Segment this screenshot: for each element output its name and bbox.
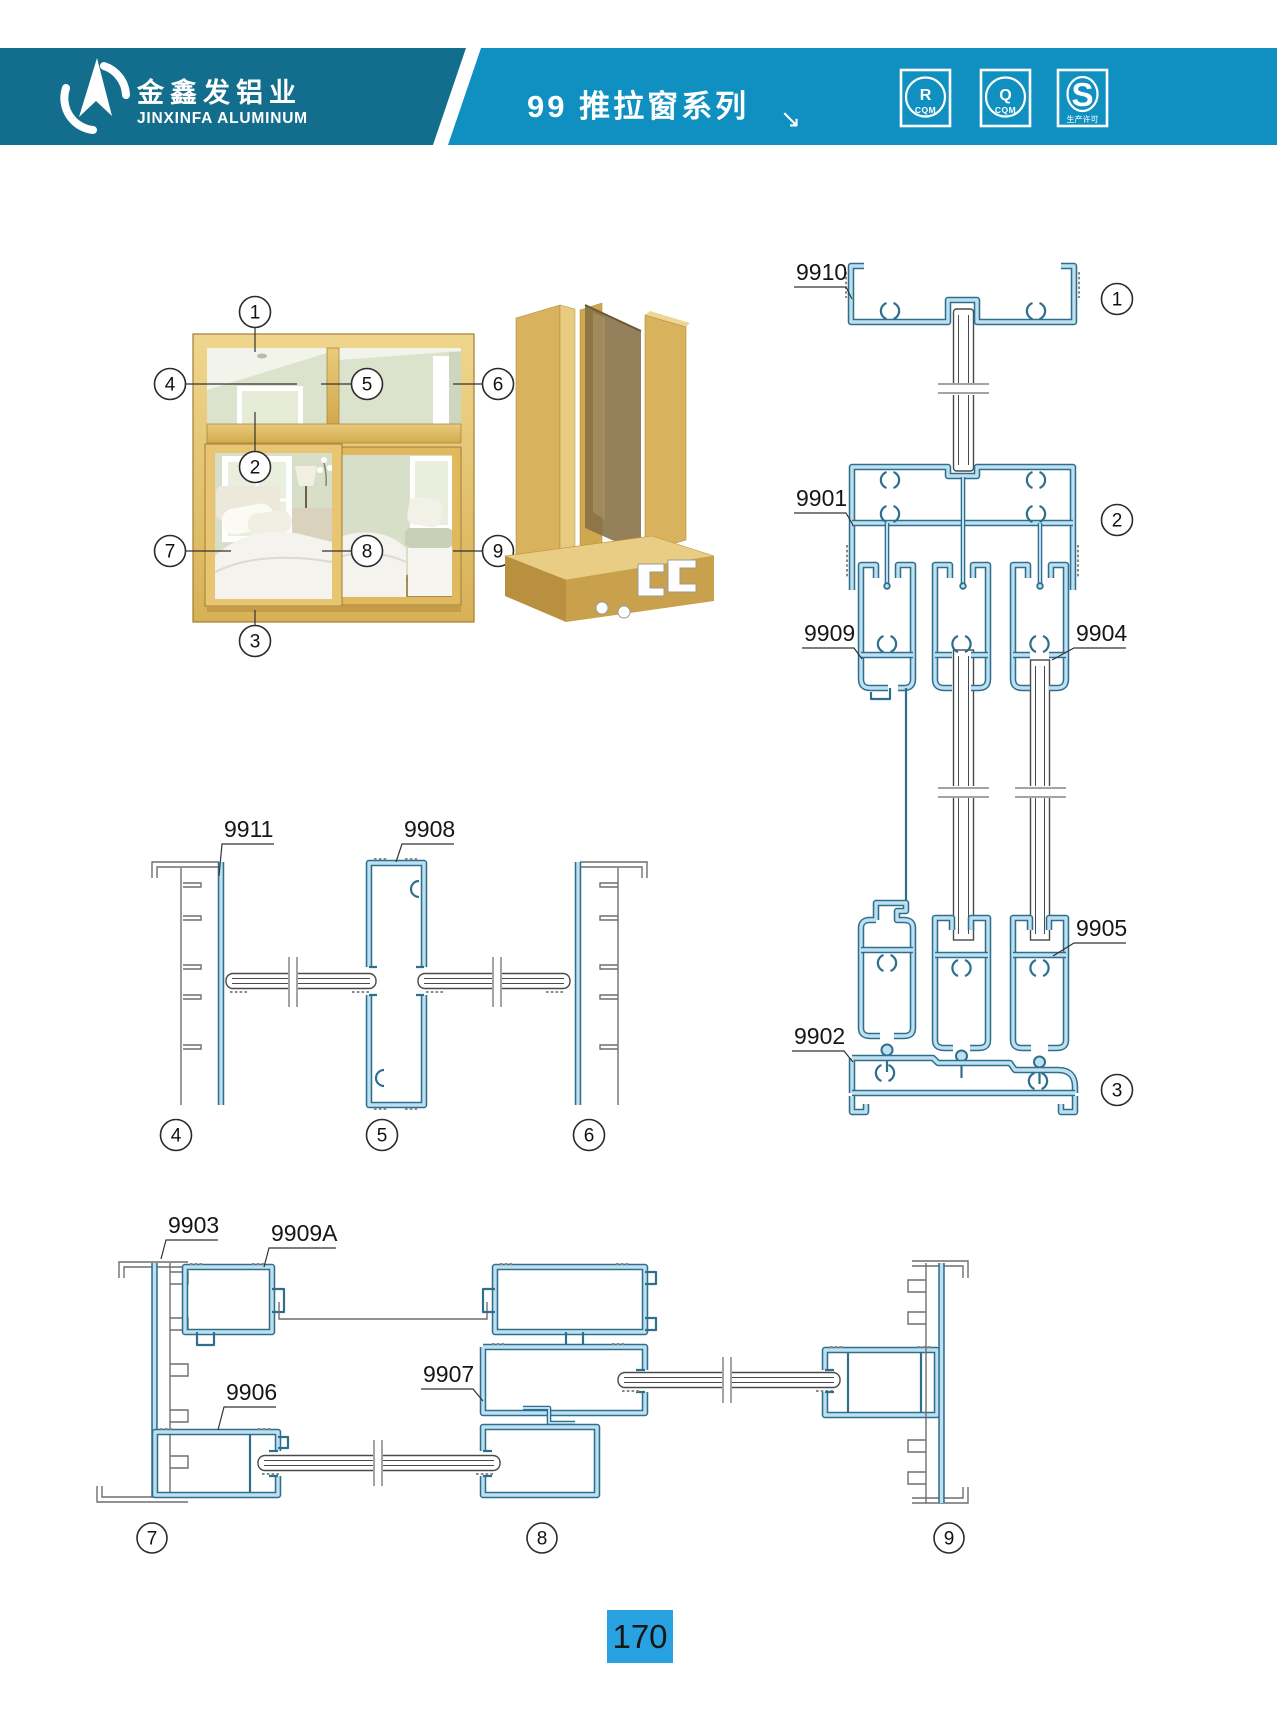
part-number: 9905 (1076, 915, 1127, 941)
callout-number: 2 (1112, 511, 1123, 532)
part-label-9903: 9903 (161, 1212, 219, 1259)
part-label-9908: 9908 (396, 816, 455, 862)
part-number: 9903 (168, 1212, 219, 1238)
sash-box-top-right (483, 1264, 656, 1346)
callout-4: 4 (155, 369, 186, 400)
part-number: 9902 (794, 1023, 845, 1049)
part-number: 9910 (796, 259, 847, 285)
badge-label: CQM (915, 105, 936, 115)
callout-5: 5 (352, 369, 383, 400)
callout-number: 3 (1112, 1081, 1123, 1102)
bottom-track (207, 606, 461, 612)
section-circle-7: 7 (137, 1523, 167, 1553)
section-circle-3: 3 (1102, 1075, 1133, 1106)
profile-9909-connector-line (871, 688, 906, 903)
callout-number: 1 (1112, 290, 1123, 311)
callout-number: 8 (537, 1529, 548, 1550)
badge-symbol: Q (999, 87, 1011, 104)
sash-box-9909a (185, 1264, 284, 1345)
badge-symbol: R (920, 87, 932, 104)
page-figure: 金鑫发铝业 JINXINFA ALUMINUM 99 推拉窗系列 ↘ R CQM… (0, 0, 1277, 1721)
section-circle-2: 2 (1102, 505, 1133, 536)
left-jamb-9911 (152, 862, 221, 1105)
callout-number: 5 (362, 375, 373, 396)
part-label-9909: 9909 (802, 620, 862, 659)
part-number: 9908 (404, 816, 455, 842)
company-name-en: JINXINFA ALUMINUM (137, 110, 308, 127)
section-circle-9: 9 (934, 1523, 964, 1553)
callout-number: 9 (493, 542, 504, 563)
transom-mullion (327, 348, 339, 424)
window-photo: 1 2 3 4 5 6 7 8 9 (155, 297, 514, 657)
part-number: 9911 (224, 816, 273, 842)
callout-3: 3 (240, 626, 271, 657)
header-band: 金鑫发铝业 JINXINFA ALUMINUM 99 推拉窗系列 ↘ R CQM… (0, 48, 1277, 145)
part-label-9910: 9910 (794, 259, 852, 299)
sections-7-8-9-horizontal-detail: 9903 9909A 9906 9907 7 8 9 (97, 1212, 968, 1553)
catalog-page: 金鑫发铝业 JINXINFA ALUMINUM 99 推拉窗系列 ↘ R CQM… (0, 0, 1277, 1721)
section-2-meeting-detail: 9901 9909 9904 2 (794, 467, 1133, 940)
sash-box-section-9 (825, 1347, 937, 1415)
callout-8: 8 (352, 536, 383, 567)
part-number: 9906 (226, 1379, 277, 1405)
callout-1: 1 (240, 297, 271, 328)
part-number: 9909 (804, 620, 855, 646)
transom-rail (207, 424, 461, 443)
callout-7: 7 (155, 536, 186, 567)
section-circle-6: 6 (574, 1120, 605, 1151)
section-circle-8: 8 (527, 1523, 557, 1553)
left-jamb-9903 (97, 1262, 188, 1502)
section-1-head-detail: 9910 1 (794, 259, 1133, 471)
part-number: 9904 (1076, 620, 1127, 646)
company-name-cn: 金鑫发铝业 (136, 77, 302, 108)
callout-number: 6 (584, 1126, 595, 1147)
part-label-9902: 9902 (792, 1023, 853, 1062)
part-number: 9901 (796, 485, 847, 511)
right-sash-glass (342, 455, 453, 599)
badge-label: CQM (995, 105, 1016, 115)
callout-number: 1 (250, 303, 261, 324)
badge-symbol: S (1071, 76, 1093, 113)
part-label-9901: 9901 (794, 485, 853, 525)
callout-number: 6 (493, 375, 504, 396)
part-label-9911: 9911 (219, 816, 274, 876)
sections-4-5-6-horizontal-detail: 9911 9908 4 5 6 (152, 816, 647, 1151)
page-number-box: 170 (607, 1610, 673, 1663)
callout-6: 6 (483, 369, 514, 400)
left-sash-glass (215, 453, 333, 599)
section-circle-5: 5 (367, 1120, 398, 1151)
part-label-9909a: 9909A (264, 1220, 338, 1267)
section-circle-1: 1 (1102, 284, 1133, 315)
arrow-down-right-icon: ↘ (780, 104, 801, 133)
callout-number: 7 (165, 542, 176, 563)
part-label-9906: 9906 (218, 1379, 277, 1430)
center-mullion-9908 (369, 859, 424, 1109)
callout-number: 7 (147, 1529, 158, 1550)
section-circle-4: 4 (161, 1120, 192, 1151)
right-jamb (578, 862, 647, 1105)
callout-number: 5 (377, 1126, 388, 1147)
page-number: 170 (612, 1618, 667, 1655)
callout-number: 3 (250, 632, 261, 653)
callout-number: 4 (165, 375, 176, 396)
page-title: 99 推拉窗系列 (527, 89, 749, 124)
part-number: 9909A (271, 1220, 338, 1246)
callout-number: 8 (362, 542, 373, 563)
callout-number: 9 (944, 1529, 955, 1550)
sash-connector-line (279, 1302, 487, 1319)
transom-left-pane (207, 348, 327, 424)
callout-number: 4 (171, 1126, 182, 1147)
profile-3d-render (505, 303, 714, 622)
part-label-9907: 9907 (421, 1361, 483, 1401)
callout-2: 2 (240, 452, 271, 483)
part-number: 9907 (423, 1361, 474, 1387)
badge-label: 生产许可 (1067, 114, 1099, 124)
callout-number: 2 (250, 458, 261, 479)
